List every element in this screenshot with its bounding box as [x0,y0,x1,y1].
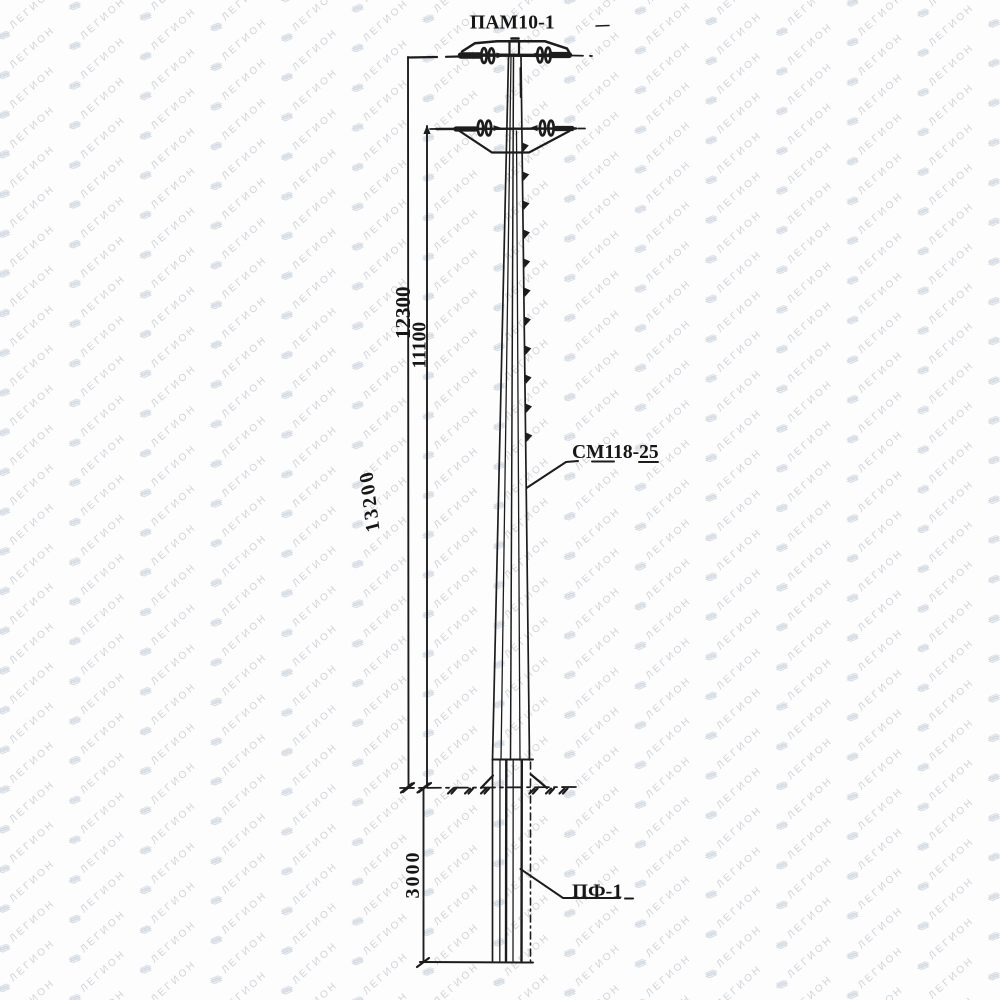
svg-text:СМ118-25: СМ118-25 [572,442,659,463]
svg-text:11100: 11100 [410,322,431,369]
svg-text:ПФ-1: ПФ-1 [572,881,623,903]
svg-text:3000: 3000 [402,851,424,899]
svg-text:ПАМ10-1: ПАМ10-1 [470,13,555,34]
